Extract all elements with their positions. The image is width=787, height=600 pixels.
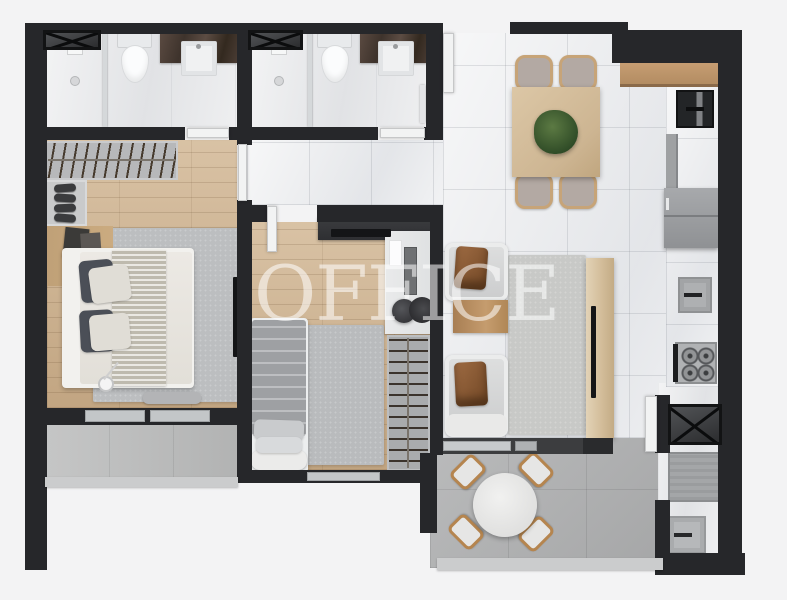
corridor-floor (247, 140, 443, 205)
laundry-faucet (674, 533, 692, 537)
tv-panel-base (583, 438, 613, 454)
faucet (196, 44, 201, 49)
vent-grill (668, 452, 722, 502)
wall-bedroom-divider-b (237, 200, 252, 482)
shoes (54, 213, 77, 223)
floor-plan-render: OFFICE (0, 0, 787, 600)
master-bedroom-door (238, 144, 247, 201)
wall-service-left-b (655, 500, 670, 555)
papers (389, 240, 402, 266)
armchair-seat (446, 414, 507, 436)
laundry-sink (668, 516, 706, 554)
closet-rail (407, 338, 409, 468)
wall-bath2-south (248, 127, 378, 140)
cooktop-control-strip (673, 344, 678, 382)
service-area-door (645, 396, 657, 452)
master-window-b (150, 410, 210, 422)
living-room-rug (508, 255, 586, 435)
bathroom-1-door (187, 128, 229, 138)
shoes (54, 183, 77, 193)
master-balcony-floor (45, 425, 238, 481)
dining-chair (559, 173, 597, 209)
refrigerator-handle (666, 198, 669, 210)
kitchen-sink-unit (676, 90, 714, 128)
bedroom-2-tv (331, 229, 391, 237)
shaft-box-bath1 (43, 30, 101, 50)
tall-cabinet (666, 134, 678, 188)
prep-sink (678, 277, 712, 313)
wall-right (718, 30, 742, 575)
wardrobe-rack (45, 141, 178, 180)
wall-balcony-left (420, 453, 437, 533)
wall-top-mid (510, 22, 628, 34)
shower-drain (70, 76, 80, 86)
refrigerator-door-split (664, 215, 718, 217)
living-room-tv (591, 306, 596, 398)
kitchen-counter-top (620, 63, 718, 87)
shoes (54, 193, 76, 202)
wall-bath2-east (426, 33, 443, 140)
wardrobe-rail (48, 159, 175, 161)
faucet (393, 44, 398, 49)
sliding-door-glass (443, 441, 511, 451)
side-table (453, 300, 508, 333)
kitchen-faucet (686, 107, 704, 111)
wall-left (25, 23, 47, 570)
hanger-closet (387, 335, 430, 471)
bed-foot-bench (251, 450, 307, 470)
master-balcony-railing (45, 477, 238, 487)
foot-bench (143, 392, 201, 404)
towel-rail (420, 85, 425, 123)
shower-glass-partition (308, 33, 312, 127)
shaft-box-bath2 (248, 30, 303, 50)
centerpiece-plant (534, 110, 578, 154)
shower-glass-partition (103, 33, 107, 127)
dining-chair (515, 55, 553, 91)
monitor (404, 247, 417, 295)
bedroom-2-door (267, 206, 277, 252)
pillow-light (89, 312, 132, 351)
bedroom2-window (307, 472, 380, 481)
leather-cushion (454, 361, 488, 407)
shaft-box-service (668, 404, 722, 445)
dining-chair (559, 55, 597, 91)
shoe-shelf (45, 180, 87, 226)
wall-bath1-south (40, 127, 185, 140)
master-window-a (85, 410, 145, 422)
refrigerator (664, 188, 718, 248)
sliding-door-glass (515, 441, 537, 451)
wall-bedroom2-north-b (317, 205, 443, 222)
wall-bedroom-divider-a (237, 127, 252, 145)
leather-cushion (454, 246, 489, 290)
wall-service-south (655, 553, 745, 575)
prep-faucet (684, 293, 702, 297)
cooktop (675, 342, 717, 384)
dining-chair (515, 173, 553, 209)
balcony-glass-railing (437, 558, 663, 570)
wall-bedroom2-north-a (247, 205, 267, 222)
single-bed-pillow (256, 437, 302, 453)
pillow-light (88, 263, 133, 304)
wall-bedroom2-east (430, 205, 443, 455)
entry-door (443, 33, 454, 93)
bathroom-2-door (380, 128, 425, 138)
balcony-round-table (473, 473, 537, 537)
shower-drain (274, 76, 284, 86)
shoes (54, 204, 76, 213)
